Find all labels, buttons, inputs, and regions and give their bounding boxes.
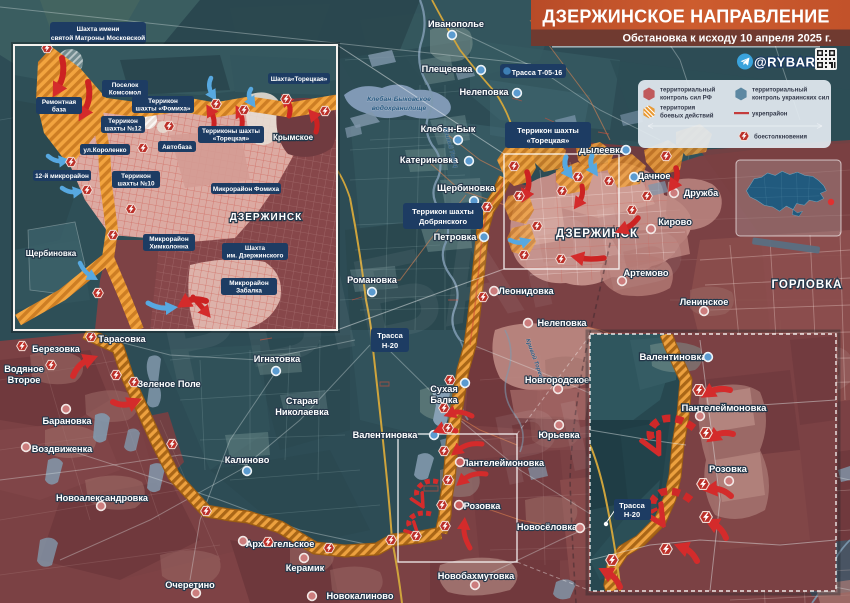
svg-text:шахты №10: шахты №10 bbox=[117, 181, 154, 188]
svg-text:«Торецкая»: «Торецкая» bbox=[213, 136, 250, 143]
svg-text:Добрянского: Добрянского bbox=[419, 217, 467, 226]
svg-text:боестолкновения: боестолкновения bbox=[754, 134, 807, 141]
svg-text:территориальный: территориальный bbox=[752, 87, 808, 94]
svg-text:Новобахмутовка: Новобахмутовка bbox=[438, 571, 515, 581]
svg-text:боевых действий: боевых действий bbox=[660, 113, 714, 120]
svg-text:Леонидовка: Леонидовка bbox=[498, 286, 554, 296]
svg-text:Пантелеймоновка: Пантелеймоновка bbox=[462, 458, 545, 468]
svg-text:территория: территория bbox=[660, 105, 696, 112]
svg-text:Второе: Второе bbox=[8, 375, 41, 385]
svg-text:Микрорайон: Микрорайон bbox=[229, 279, 269, 287]
svg-text:Шахта: Шахта bbox=[245, 245, 266, 252]
svg-text:Очеретино: Очеретино bbox=[165, 580, 215, 590]
svg-text:Калиново: Калиново bbox=[225, 455, 270, 465]
svg-text:Крымское: Крымское bbox=[273, 133, 314, 142]
svg-text:ул.Короленко: ул.Короленко bbox=[83, 147, 126, 154]
svg-text:Старая: Старая bbox=[286, 396, 318, 406]
svg-text:шахты «Фомиха»: шахты «Фомиха» bbox=[136, 106, 191, 113]
svg-text:Щербиновка: Щербиновка bbox=[437, 183, 496, 193]
svg-text:Петровка: Петровка bbox=[434, 232, 478, 242]
svg-text:Новгородское: Новгородское bbox=[525, 375, 589, 385]
svg-text:Николаевка: Николаевка bbox=[275, 407, 329, 417]
svg-text:Террикон: Террикон bbox=[108, 118, 138, 125]
svg-text:Иванополье: Иванополье bbox=[428, 19, 484, 29]
svg-text:Терриконы шахты: Терриконы шахты bbox=[202, 128, 261, 135]
svg-text:Шахта«Торецкая»: Шахта«Торецкая» bbox=[271, 76, 328, 83]
svg-text:Микрорайон: Микрорайон bbox=[149, 235, 189, 243]
svg-text:Зеленое Поле: Зеленое Поле bbox=[137, 379, 200, 389]
svg-text:Трасса Т-05-16: Трасса Т-05-16 bbox=[512, 70, 563, 77]
svg-text:Обстановка к исходу 10 апреля: Обстановка к исходу 10 апреля 2025 г. bbox=[622, 33, 831, 45]
svg-text:Нелеповка: Нелеповка bbox=[537, 318, 587, 328]
svg-text:ДЗЕРЖИНСК: ДЗЕРЖИНСК bbox=[230, 212, 303, 223]
svg-text:Кирово: Кирово bbox=[658, 217, 692, 227]
svg-text:Юрьевка: Юрьевка bbox=[538, 430, 580, 440]
svg-text:Трасса: Трасса bbox=[619, 501, 645, 510]
svg-text:Новокалиново: Новокалиново bbox=[327, 591, 394, 601]
svg-text:ДЗЕРЖИНСКОЕ НАПРАВЛЕНИЕ: ДЗЕРЖИНСКОЕ НАПРАВЛЕНИЕ bbox=[542, 7, 829, 27]
svg-text:Воздвиженка: Воздвиженка bbox=[32, 444, 93, 454]
svg-text:Клебан-Быковское: Клебан-Быковское bbox=[367, 95, 431, 103]
svg-text:святой Матроны Московской: святой Матроны Московской bbox=[51, 34, 145, 42]
svg-text:Микрорайон Фомиха: Микрорайон Фомиха bbox=[213, 185, 280, 193]
svg-text:контроль украинских сил: контроль украинских сил bbox=[752, 95, 829, 102]
svg-text:Новосёловка: Новосёловка bbox=[517, 522, 578, 532]
svg-text:Романовка: Романовка bbox=[347, 275, 398, 285]
svg-text:Водяное: Водяное bbox=[4, 364, 44, 374]
svg-text:контроль сил РФ: контроль сил РФ bbox=[660, 95, 712, 102]
svg-text:«Торецкая»: «Торецкая» bbox=[527, 136, 570, 145]
svg-text:Валентиновка: Валентиновка bbox=[353, 430, 419, 440]
svg-text:Ремонтная: Ремонтная bbox=[42, 99, 77, 106]
svg-text:территориальный: территориальный bbox=[660, 87, 716, 94]
svg-text:Пантелеймоновка: Пантелеймоновка bbox=[682, 403, 768, 414]
svg-text:Архангельское: Архангельское bbox=[246, 539, 315, 549]
svg-text:Артемово: Артемово bbox=[623, 268, 668, 278]
svg-text:Поселок: Поселок bbox=[112, 82, 139, 89]
svg-text:укрепрайон: укрепрайон bbox=[752, 111, 788, 118]
svg-text:Валентиновка: Валентиновка bbox=[640, 352, 708, 363]
svg-text:Комсомол: Комсомол bbox=[109, 90, 141, 97]
svg-text:Щербиновка: Щербиновка bbox=[26, 249, 77, 258]
svg-text:база: база bbox=[52, 106, 67, 114]
svg-text:Нелеповка: Нелеповка bbox=[459, 87, 509, 97]
svg-text:@RYBAR: @RYBAR bbox=[754, 55, 816, 70]
svg-text:Розовка: Розовка bbox=[709, 464, 748, 475]
svg-text:Березовка: Березовка bbox=[32, 344, 81, 354]
svg-text:Плещеевка: Плещеевка bbox=[422, 64, 474, 74]
svg-text:им. Дзержинского: им. Дзержинского bbox=[227, 253, 284, 260]
svg-text:Дружба: Дружба bbox=[684, 188, 719, 198]
svg-text:Химколонна: Химколонна bbox=[150, 244, 189, 251]
svg-text:Розовка: Розовка bbox=[464, 501, 502, 511]
svg-text:Тарасовка: Тарасовка bbox=[98, 334, 146, 344]
svg-text:Игнатовка: Игнатовка bbox=[254, 354, 301, 364]
svg-text:Ленинское: Ленинское bbox=[680, 297, 729, 307]
svg-text:Шахта имени: Шахта имени bbox=[77, 26, 120, 33]
svg-text:Автобаза: Автобаза bbox=[162, 143, 192, 151]
svg-text:Н-20: Н-20 bbox=[624, 510, 640, 519]
svg-text:Керамик: Керамик bbox=[286, 563, 325, 573]
svg-text:Сухая: Сухая bbox=[430, 384, 457, 394]
svg-text:Террикон: Террикон bbox=[148, 98, 178, 105]
svg-text:Забалка: Забалка bbox=[236, 287, 262, 295]
svg-text:шахты №12: шахты №12 bbox=[104, 126, 141, 133]
svg-text:водохранилище: водохранилище bbox=[372, 104, 427, 112]
svg-text:Барановка: Барановка bbox=[43, 416, 93, 426]
svg-text:Террикон: Террикон bbox=[121, 173, 151, 180]
svg-text:Террикон шахты: Террикон шахты bbox=[412, 207, 474, 216]
svg-text:Дачное: Дачное bbox=[637, 171, 670, 181]
svg-text:12-й микрорайон: 12-й микрорайон bbox=[35, 172, 89, 180]
svg-text:ГОРЛОВКА: ГОРЛОВКА bbox=[772, 279, 843, 291]
svg-text:Н-20: Н-20 bbox=[382, 341, 398, 350]
svg-text:Трасса: Трасса bbox=[377, 331, 403, 340]
svg-text:Террикон шахты: Террикон шахты bbox=[517, 126, 579, 135]
